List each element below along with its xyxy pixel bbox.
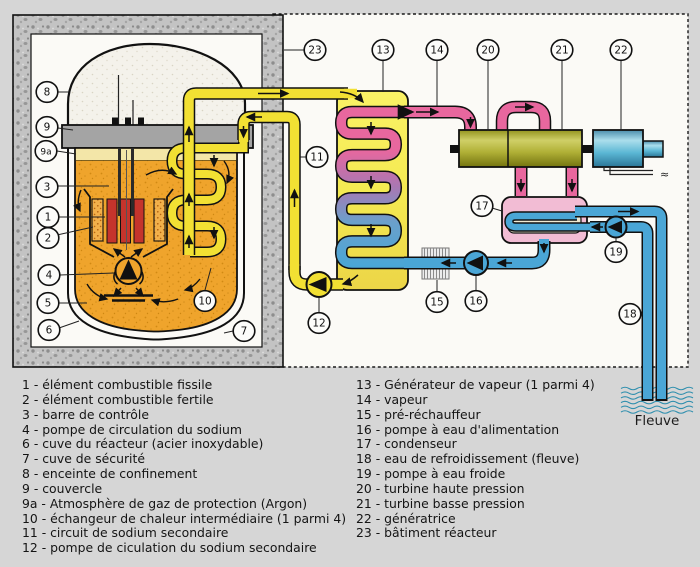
label-marker-1: 1 (37, 207, 59, 228)
label-marker-22: 22 (610, 40, 632, 61)
label-marker-9: 9 (36, 117, 58, 138)
svg-text:7: 7 (241, 326, 248, 338)
legend-item: 6 - cuve du réacteur (acier inoxydable) (22, 437, 346, 452)
legend-item: 3 - barre de contrôle (22, 408, 346, 423)
fertile-element-right (154, 199, 165, 241)
lid-posts (112, 118, 144, 126)
hp-lp-turbine-block (459, 130, 582, 167)
svg-text:23: 23 (308, 45, 321, 57)
svg-text:9: 9 (44, 122, 51, 134)
svg-text:17: 17 (475, 201, 488, 213)
label-marker-23: 23 (304, 40, 326, 61)
turbines (450, 130, 593, 167)
cold-water-pump (606, 217, 627, 238)
label-marker-10: 10 (194, 291, 216, 312)
svg-text:18: 18 (623, 309, 636, 321)
svg-text:21: 21 (555, 45, 568, 57)
svg-text:5: 5 (45, 298, 52, 310)
secondary-sodium-pump (307, 272, 332, 297)
svg-text:4: 4 (46, 270, 53, 282)
label-marker-17: 17 (471, 196, 493, 217)
legend-item: 1 - élément combustible fissile (22, 378, 346, 393)
svg-text:9a: 9a (40, 147, 51, 157)
control-rod (131, 148, 134, 216)
label-marker-4: 4 (38, 265, 60, 286)
fissile-element (134, 199, 144, 243)
legend-item: 17 - condenseur (356, 437, 595, 452)
legend-item: 18 - eau de refroidissement (fleuve) (356, 452, 595, 467)
label-marker-20: 20 (477, 40, 499, 61)
label-marker-7: 7 (233, 321, 255, 342)
legend-item: 16 - pompe à eau d'alimentation (356, 423, 595, 438)
label-marker-21: 21 (551, 40, 573, 61)
legend-item: 15 - pré-réchauffeur (356, 408, 595, 423)
label-marker-15: 15 (426, 292, 448, 313)
svg-text:6: 6 (46, 325, 53, 337)
legend-item: 21 - turbine basse pression (356, 497, 595, 512)
river-label: Fleuve (635, 413, 680, 429)
legend-item: 2 - élément combustible fertile (22, 393, 346, 408)
svg-text:12: 12 (312, 318, 325, 330)
label-marker-9a: 9a (35, 141, 57, 162)
legend-item: 14 - vapeur (356, 393, 595, 408)
fissile-element (121, 199, 131, 243)
fissile-element (107, 199, 117, 243)
label-marker-6: 6 (38, 320, 60, 341)
svg-text:3: 3 (44, 182, 51, 194)
label-marker-14: 14 (426, 40, 448, 61)
svg-text:16: 16 (469, 296, 483, 308)
svg-text:1: 1 (45, 212, 52, 224)
legend-right-column: 13 - Générateur de vapeur (1 parmi 4) 14… (356, 378, 595, 541)
svg-text:13: 13 (376, 45, 389, 57)
svg-text:2: 2 (45, 233, 52, 245)
svg-text:14: 14 (430, 45, 444, 57)
legend-item: 23 - bâtiment réacteur (356, 526, 595, 541)
legend-item: 20 - turbine haute pression (356, 482, 595, 497)
label-marker-12: 12 (308, 313, 330, 334)
label-marker-2: 2 (37, 228, 59, 249)
legend-item: 22 - génératrice (356, 512, 595, 527)
fertile-element-left (92, 199, 103, 241)
control-rod (118, 148, 121, 216)
feedwater-pump (464, 251, 488, 275)
label-marker-13: 13 (372, 40, 394, 61)
legend-item: 12 - pompe de ciculation du sodium secon… (22, 541, 346, 556)
label-marker-16: 16 (465, 291, 487, 312)
svg-text:11: 11 (310, 152, 323, 164)
label-marker-11: 11 (306, 147, 328, 168)
legend-item: 8 - enceinte de confinement (22, 467, 346, 482)
label-marker-5: 5 (37, 293, 59, 314)
legend-item: 9 - couvercle (22, 482, 346, 497)
svg-text:8: 8 (44, 87, 51, 99)
label-marker-19: 19 (605, 242, 627, 263)
svg-text:20: 20 (481, 45, 494, 57)
electric-output-symbol: ≈ (660, 168, 669, 181)
svg-text:22: 22 (614, 45, 627, 57)
legend-item: 11 - circuit de sodium secondaire (22, 526, 346, 541)
svg-text:10: 10 (198, 296, 211, 308)
legend-item: 10 - échangeur de chaleur intermédiaire … (22, 512, 346, 527)
legend-left-column: 1 - élément combustible fissile 2 - élém… (22, 378, 346, 556)
legend-item: 13 - Générateur de vapeur (1 parmi 4) (356, 378, 595, 393)
label-marker-18: 18 (619, 304, 641, 325)
legend-item: 7 - cuve de sécurité (22, 452, 346, 467)
condenser (502, 197, 592, 243)
label-marker-8: 8 (36, 82, 58, 103)
reactor-schematic-page: ≈ (0, 0, 700, 567)
svg-text:15: 15 (430, 297, 443, 309)
legend-item: 9a - Atmosphère de gaz de protection (Ar… (22, 497, 346, 512)
svg-text:19: 19 (609, 247, 622, 259)
legend-item: 4 - pompe de circulation du sodium (22, 423, 346, 438)
legend-item: 19 - pompe à eau froide (356, 467, 595, 482)
label-marker-3: 3 (36, 177, 58, 198)
